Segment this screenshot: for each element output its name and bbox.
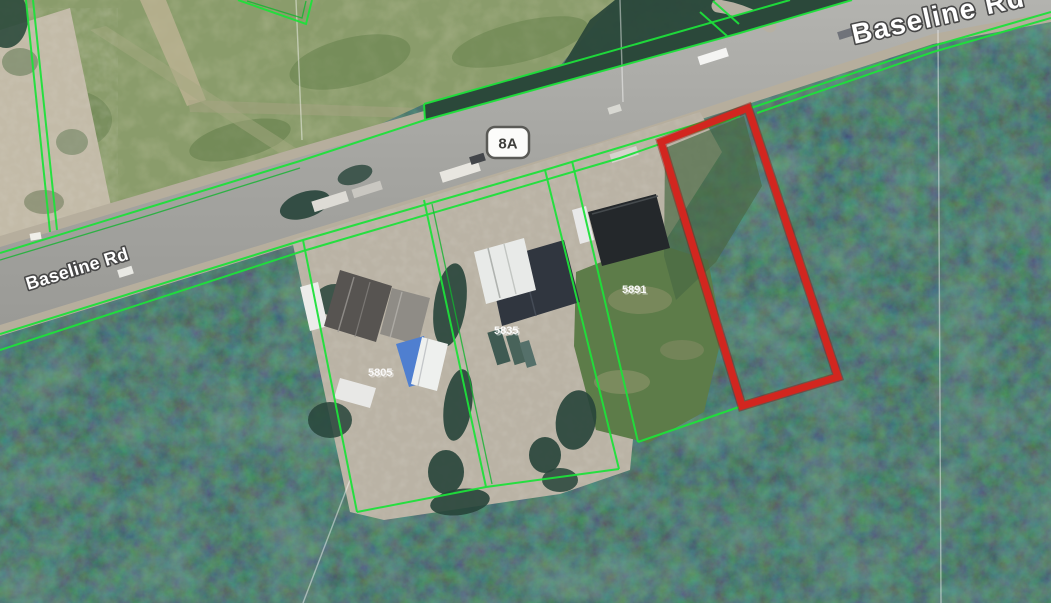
highway-shield-label: 8A bbox=[498, 136, 517, 153]
highway-shield-8a: 8A bbox=[487, 127, 529, 158]
address-label-middle: 5835 bbox=[494, 325, 518, 337]
address-label-right: 5891 bbox=[622, 284, 646, 296]
satellite-map[interactable]: Baseline Rd Baseline Rd 8A 5805 5805 583… bbox=[0, 0, 1051, 603]
address-label-left: 5805 bbox=[368, 367, 392, 379]
satellite-map-viewport[interactable]: Baseline Rd Baseline Rd 8A 5805 5805 583… bbox=[0, 0, 1051, 603]
